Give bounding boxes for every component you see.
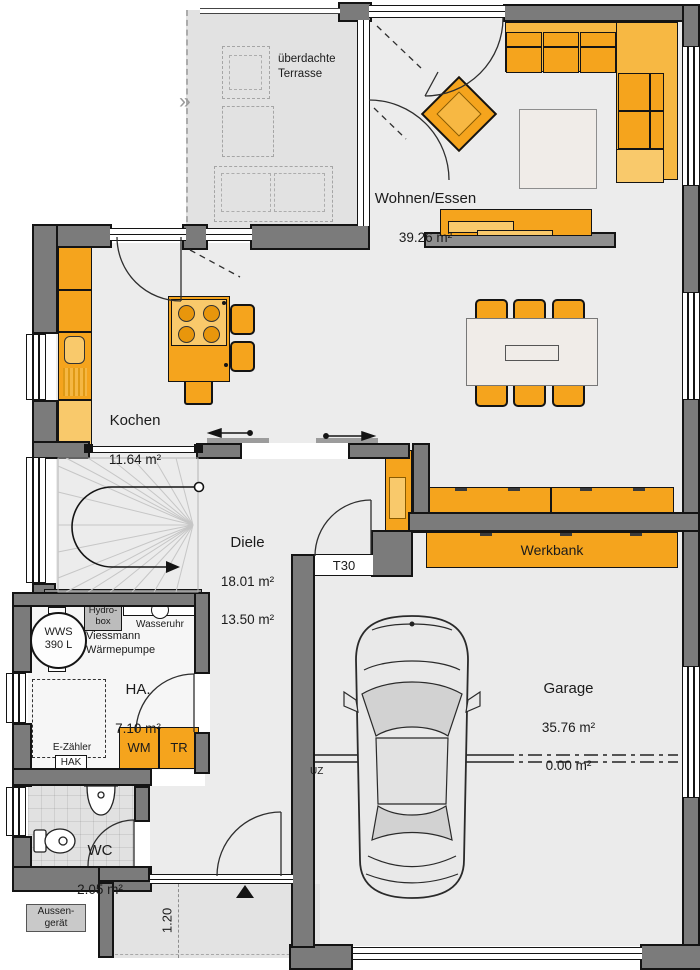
wall-garage-top [408, 512, 700, 532]
sideboard-handle [455, 488, 467, 491]
hall-label: Diele 18.01 m² 13.50 m² [205, 512, 290, 650]
living-room-name: Wohnen/Essen [348, 189, 503, 209]
garage-door [353, 947, 642, 960]
wall-left-kitchen-lower [32, 400, 58, 443]
sofa-seat-cushion [580, 47, 616, 73]
kitchen-counter-3 [58, 400, 92, 445]
stairs-post-left [84, 444, 93, 453]
terrace-armchair [222, 46, 270, 99]
wall-garage-left [291, 554, 315, 948]
beam-label: UZ [310, 765, 334, 778]
wall-left-kitchen-upper [32, 224, 58, 334]
sliding-door-panel [207, 438, 269, 443]
front-door-sill [150, 874, 293, 884]
kitchen-counter-1 [58, 245, 92, 290]
wall-wc-right [134, 786, 150, 822]
window-right-3 [682, 666, 700, 798]
terrace-door-glass-1 [110, 228, 186, 241]
window-right-2 [682, 292, 700, 400]
living-room-area: 39.26 m² [348, 229, 503, 247]
cooktop [171, 299, 227, 346]
sideboard-handle [580, 488, 592, 491]
burner [203, 326, 220, 343]
sofa-seat-cushion [506, 47, 542, 73]
wc-area: 2.05 m² [58, 881, 142, 899]
sofa-back-cushion [543, 32, 579, 47]
wall-utility-wc-divider [12, 768, 152, 786]
window-utility-left [6, 673, 26, 723]
sideboard-handle [508, 488, 520, 491]
workbench-handle [630, 533, 642, 536]
sofa-back-cushion [506, 32, 542, 47]
wall-utility-top [12, 592, 210, 607]
wc-label: WC 2.05 m² [58, 820, 142, 919]
sofa-back-cushion [650, 73, 664, 111]
utility-name: HA. [102, 680, 174, 700]
kitchen-counter-2 [58, 290, 92, 332]
fire-door-label: T30 [315, 558, 373, 575]
living-room-label: Wohnen/Essen 39.26 m² [348, 168, 503, 267]
window-kitchen-left [26, 334, 46, 400]
wc-name: WC [58, 841, 142, 861]
entry-width-dimension: 1.20 [160, 898, 177, 942]
garage-name: Garage [516, 679, 621, 699]
sofa-back-cushion [580, 32, 616, 47]
sofa-seat-cushion [543, 47, 579, 73]
wall-right-3 [682, 398, 700, 668]
wall-garage-bottom-right [640, 944, 700, 970]
terrace-sofa [214, 166, 333, 222]
burner [178, 326, 195, 343]
floor-plan: » Werkbank WWS 390 L Hydro- box Wasseruh… [0, 0, 700, 970]
wall-utility-right-lower [194, 732, 210, 774]
island-handle-dot [222, 301, 226, 305]
wall-right-2 [682, 184, 700, 294]
kitchen-area: 11.64 m² [98, 451, 172, 469]
stairs-post-right [194, 444, 203, 453]
island-chair [230, 304, 255, 335]
utility-door-opening [194, 674, 210, 732]
corridor-floor-lower [148, 786, 293, 886]
water-tank-label: WWS 390 L [32, 626, 85, 652]
dining-table [466, 318, 598, 386]
wall-hall-living-stub [348, 443, 410, 459]
garage-area-1: 35.76 m² [516, 719, 621, 737]
garage-area-2: 0.00 m² [516, 757, 621, 775]
sideboard-handle [633, 488, 645, 491]
workbench-label: Werkbank [427, 541, 677, 559]
terrace-roof-edge [200, 8, 340, 14]
sofa-back-cushion [650, 111, 664, 149]
hall-area-2: 13.50 m² [205, 611, 290, 629]
sliding-door-opening [240, 443, 350, 459]
window-right-1 [682, 46, 700, 186]
utility-area: 7.10 m² [102, 720, 174, 738]
kitchen-name: Kochen [98, 411, 172, 431]
sink [64, 336, 85, 364]
sofa-seat-cushion [618, 111, 650, 149]
hall-area-1: 18.01 m² [205, 573, 290, 591]
kitchen-label: Kochen 11.64 m² [98, 390, 172, 489]
hall-name: Diele [205, 533, 290, 553]
hydrobox-label: Hydro- box [85, 606, 121, 628]
utility-label: HA. 7.10 m² [102, 659, 174, 758]
chevron-right-icon: » [179, 90, 191, 114]
workbench: Werkbank [426, 532, 678, 568]
sink-drainer [63, 368, 87, 396]
living-folding-door-track [369, 5, 505, 18]
wall-left-utility-1 [12, 605, 32, 673]
terrace-door-glass-2 [206, 228, 252, 241]
terrace-label: überdachte Terrasse [278, 52, 350, 82]
wall-top-living [503, 4, 700, 22]
burner [203, 305, 220, 322]
wall-t30-corner [371, 530, 413, 577]
terrace-top-pillar [338, 2, 372, 22]
sofa-chaise [616, 149, 664, 183]
burner [178, 305, 195, 322]
water-tank: WWS 390 L [30, 612, 87, 669]
wall-right-1 [682, 4, 700, 48]
window-stairs-left [26, 457, 46, 583]
heat-pump-label: Viessmann Wärmepumpe [86, 630, 166, 658]
sofa-seat-cushion [618, 73, 650, 111]
workbench-handle [560, 533, 572, 536]
garage-floor [313, 530, 682, 946]
workbench-handle [480, 533, 492, 536]
window-wc-left [6, 787, 26, 836]
platform-dashed-line [178, 884, 179, 958]
terrace-table [222, 106, 274, 157]
rug [519, 109, 597, 189]
garage-label: Garage 35.76 m² 0.00 m² [516, 658, 621, 796]
sliding-door-panel [316, 438, 378, 443]
electric-meter-label: E-Zähler [46, 741, 98, 754]
hydrobox: Hydro- box [84, 604, 122, 631]
kitchen-counter-sink [58, 332, 92, 400]
island-handle-dot [224, 363, 228, 367]
bar-stool [184, 378, 213, 405]
island-chair [230, 341, 255, 372]
